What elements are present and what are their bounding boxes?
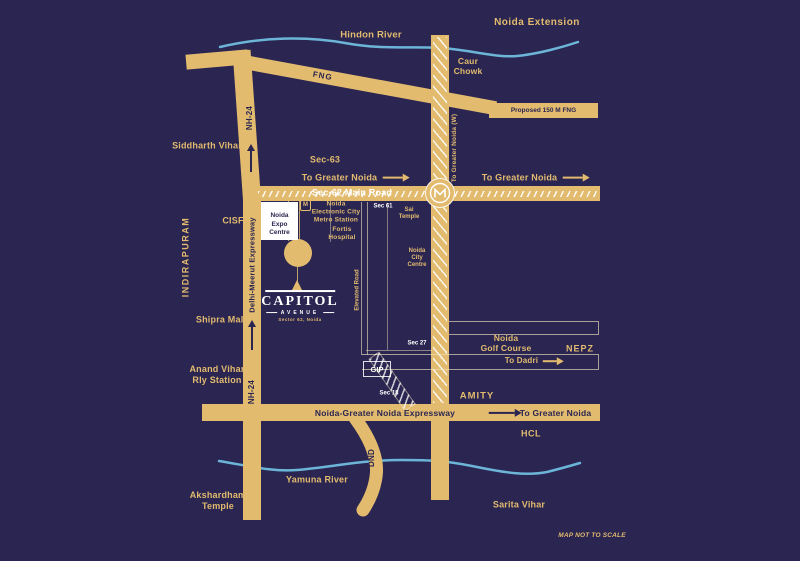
- right-arrow-icon: [562, 177, 582, 179]
- label-dnd: DND: [367, 449, 377, 467]
- label-cisf: CISF: [222, 216, 243, 227]
- label-fortis-hospital: Fortis Hospital: [328, 226, 355, 242]
- sector-boundary-line-2: [387, 203, 388, 350]
- label-noida-greater-noida-expressway: Noida-Greater Noida Expressway: [315, 408, 455, 418]
- logo-dash-right: [323, 312, 334, 313]
- label-map-not-to-scale: MAP NOT TO SCALE: [558, 532, 625, 540]
- gip-label: GIP: [371, 365, 384, 374]
- logo-subrow: AVENUE: [261, 310, 339, 316]
- logo-name: CAPITOL: [261, 294, 339, 309]
- label-delhi-meerut-expressway: Delhi-Meerut Expressway: [248, 217, 257, 312]
- label-anand-vihar: Anand Vihar Rly Station: [189, 364, 244, 386]
- label-to-greater-noida-right: To Greater Noida: [482, 173, 583, 184]
- label-hindon-river: Hindon River: [340, 29, 402, 40]
- label-akshardham: Akshardham Temple: [190, 490, 247, 512]
- metro-icon-letter: M: [303, 202, 308, 208]
- dnd-road-layer: [0, 0, 800, 561]
- label-to-greater-noida-w: To Greater Noida (W): [451, 114, 459, 183]
- noida-expo-centre-label: Noida Expo Centre: [269, 212, 290, 236]
- location-map: FNG Proposed 150 M FNG CAPITOL AVENUE Se…: [0, 0, 800, 561]
- right-arrow-icon: [489, 412, 515, 414]
- label-nh24-top: NH-24: [245, 106, 255, 130]
- right-arrow-icon: [543, 360, 557, 362]
- capitol-avenue-logo: CAPITOL AVENUE Sector 62, Noida: [261, 290, 339, 322]
- right-arrow-icon: [382, 177, 402, 179]
- label-caur-chowk: Caur Chowk: [454, 56, 483, 76]
- metro-station-icon: M: [300, 200, 311, 211]
- label-sarita-vihar: Sarita Vihar: [493, 500, 545, 511]
- label-elevated-road: Elevated Road: [354, 269, 361, 310]
- to-greater-noida-right-text: To Greater Noida: [482, 173, 558, 184]
- to-greater-noida-end-text: To Greater Noida: [520, 408, 592, 418]
- logo-subname: AVENUE: [281, 310, 319, 316]
- label-to-dadri: To Dadri: [505, 356, 557, 366]
- logo-tagline: Sector 62, Noida: [261, 317, 339, 322]
- label-sai-temple: Sai Temple: [399, 207, 420, 221]
- site-marker-circle: [284, 239, 312, 267]
- label-sec27: Sec 27: [407, 340, 426, 347]
- label-siddharth-vihar: Siddharth Vihar: [172, 141, 242, 152]
- logo-rule: [265, 290, 335, 292]
- noida-expo-centre-box: Noida Expo Centre: [261, 202, 298, 240]
- label-metro-station: Noida Electronic City Metro Station: [312, 200, 361, 223]
- nh24-up-arrow-top: [250, 150, 252, 172]
- elevated-road-line: [361, 202, 368, 355]
- gip-box: GIP: [363, 361, 391, 377]
- label-sec18: Sec 18: [379, 390, 398, 397]
- label-yamuna-river: Yamuna River: [286, 475, 348, 486]
- label-hcl: HCL: [521, 429, 541, 440]
- expressway-up-arrow: [251, 326, 253, 350]
- label-sec62-main-road: Sec-62 Main Road: [312, 188, 392, 199]
- label-to-greater-noida-end: To Greater Noida: [489, 408, 592, 418]
- label-nh24-bottom: NH-24: [247, 380, 257, 404]
- metro-roundabout: [425, 178, 455, 208]
- label-shipra-mall: Shipra Mall: [196, 315, 246, 326]
- label-amity: AMITY: [460, 390, 495, 401]
- to-dadri-text: To Dadri: [505, 356, 538, 366]
- label-to-greater-noida-left: To Greater Noida: [302, 173, 403, 184]
- label-noida-city-centre: Noida City Centre: [407, 248, 426, 270]
- label-noida-golf-course: Noida Golf Course: [481, 333, 532, 353]
- logo-dash-left: [266, 312, 277, 313]
- to-greater-noida-left-text: To Greater Noida: [302, 173, 378, 184]
- label-sec61: Sec 61: [373, 203, 392, 210]
- label-nepz: NEPZ: [566, 344, 594, 355]
- label-noida-extension: Noida Extension: [494, 17, 580, 29]
- label-indirapuram: INDIRAPURAM: [181, 217, 192, 298]
- metro-logo-icon: [426, 179, 454, 207]
- label-sec63: Sec-63: [310, 155, 340, 166]
- sec27-road-line: [366, 350, 432, 351]
